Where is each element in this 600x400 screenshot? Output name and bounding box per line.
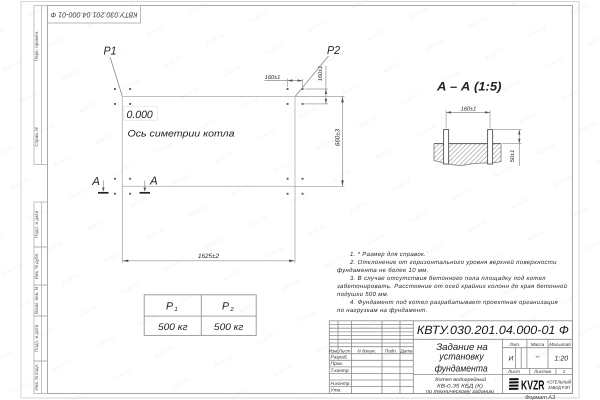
- svg-text:1625±2: 1625±2: [198, 253, 219, 260]
- svg-text:установку: установку: [438, 352, 485, 363]
- svg-text:160±1: 160±1: [265, 75, 281, 81]
- svg-text:N докум.: N докум.: [357, 348, 376, 353]
- svg-text:по техническому заданию: по техническому заданию: [426, 389, 494, 395]
- svg-text:160±1: 160±1: [318, 66, 324, 82]
- svg-text:500 кг: 500 кг: [158, 322, 188, 333]
- svg-text:Подп. и дата: Подп. и дата: [34, 325, 39, 353]
- svg-text:по нагрузкам на фундамент.: по нагрузкам на фундамент.: [337, 307, 428, 314]
- svg-text:1: 1: [563, 369, 566, 374]
- svg-text:0.000: 0.000: [127, 109, 153, 121]
- svg-text:50±1: 50±1: [510, 150, 516, 162]
- svg-text:Ось симетрии котла: Ось симетрии котла: [128, 129, 235, 139]
- svg-text:Взам. инв. N: Взам. инв. N: [34, 287, 39, 314]
- svg-text:500 кг: 500 кг: [214, 322, 244, 333]
- svg-text:4. Фундамент под котел разраб: 4. Фундамент под котел разрабатывает про…: [350, 299, 559, 306]
- svg-text:Инв. N подл.: Инв. N подл.: [34, 363, 39, 390]
- svg-text:P: P: [222, 301, 229, 313]
- svg-text:P1: P1: [104, 46, 117, 58]
- svg-text:КВТУ.030.201.04.000-01 Ф: КВТУ.030.201.04.000-01 Ф: [417, 323, 569, 337]
- svg-text:фундамента не более 10 мм.: фундамента не более 10 мм.: [337, 267, 429, 274]
- svg-text:160±1: 160±1: [461, 106, 477, 112]
- svg-text:Лист: Лист: [507, 369, 520, 374]
- svg-text:А: А: [91, 176, 100, 188]
- svg-text:1: 1: [174, 306, 177, 313]
- svg-text:P: P: [166, 301, 173, 313]
- svg-text:И: И: [509, 356, 514, 363]
- svg-text:Котел водогрейный: Котел водогрейный: [435, 377, 486, 383]
- svg-text:Масса: Масса: [531, 342, 545, 347]
- svg-text:фундамента: фундамента: [435, 363, 488, 374]
- svg-text:2. Отклонение от горизонтальн: 2. Отклонение от горизонтального уровня …: [349, 259, 557, 266]
- svg-text:Листов: Листов: [533, 369, 551, 374]
- svg-text:подушки 500 мм.: подушки 500 мм.: [337, 291, 389, 298]
- svg-text:Утв.: Утв.: [331, 388, 342, 394]
- svg-text:Формат А3: Формат А3: [525, 395, 556, 400]
- svg-text:Т.контр.: Т.контр.: [331, 368, 350, 374]
- svg-text:Перв. примен.: Перв. примен.: [34, 31, 39, 62]
- svg-text:Лист: Лист: [338, 348, 351, 353]
- svg-text:КВТУ.030.201.04.000-01 Ф: КВТУ.030.201.04.000-01 Ф: [50, 10, 137, 19]
- svg-text:–: –: [535, 354, 540, 361]
- svg-text:Подп.: Подп.: [385, 348, 397, 353]
- svg-text:KVZR: KVZR: [521, 377, 545, 392]
- svg-text:А – А (1:5): А – А (1:5): [436, 80, 502, 94]
- svg-text:Подп. и дата: Подп. и дата: [34, 211, 39, 239]
- svg-text:Масштаб: Масштаб: [549, 342, 571, 347]
- svg-text:Н.контр.: Н.контр.: [331, 381, 351, 387]
- svg-text:P2: P2: [327, 45, 341, 57]
- svg-text:Инв. N дубл.: Инв. N дубл.: [34, 253, 39, 280]
- svg-text:Дата: Дата: [399, 348, 413, 353]
- svg-text:1:20: 1:20: [554, 356, 568, 363]
- svg-text:1. * Размер для справок.: 1. * Размер для справок.: [350, 251, 426, 258]
- svg-text:А: А: [149, 175, 158, 187]
- svg-text:Справ. N: Справ. N: [34, 127, 39, 146]
- svg-text:ЗАВОД РЭП: ЗАВОД РЭП: [548, 385, 570, 390]
- svg-text:3. В случае отсутствия бетонн: 3. В случае отсутствия бетонного пола пл…: [350, 275, 546, 282]
- svg-text:Пров.: Пров.: [331, 361, 344, 367]
- svg-text:Изм.: Изм.: [329, 348, 339, 353]
- svg-text:2: 2: [229, 306, 234, 313]
- svg-text:Лит.: Лит.: [508, 342, 520, 347]
- svg-text:Разраб.: Разраб.: [331, 355, 348, 361]
- svg-text:забетонировать. Расстояние от: забетонировать. Расстояние от осей крайн…: [336, 283, 568, 290]
- svg-text:660±3: 660±3: [334, 128, 341, 146]
